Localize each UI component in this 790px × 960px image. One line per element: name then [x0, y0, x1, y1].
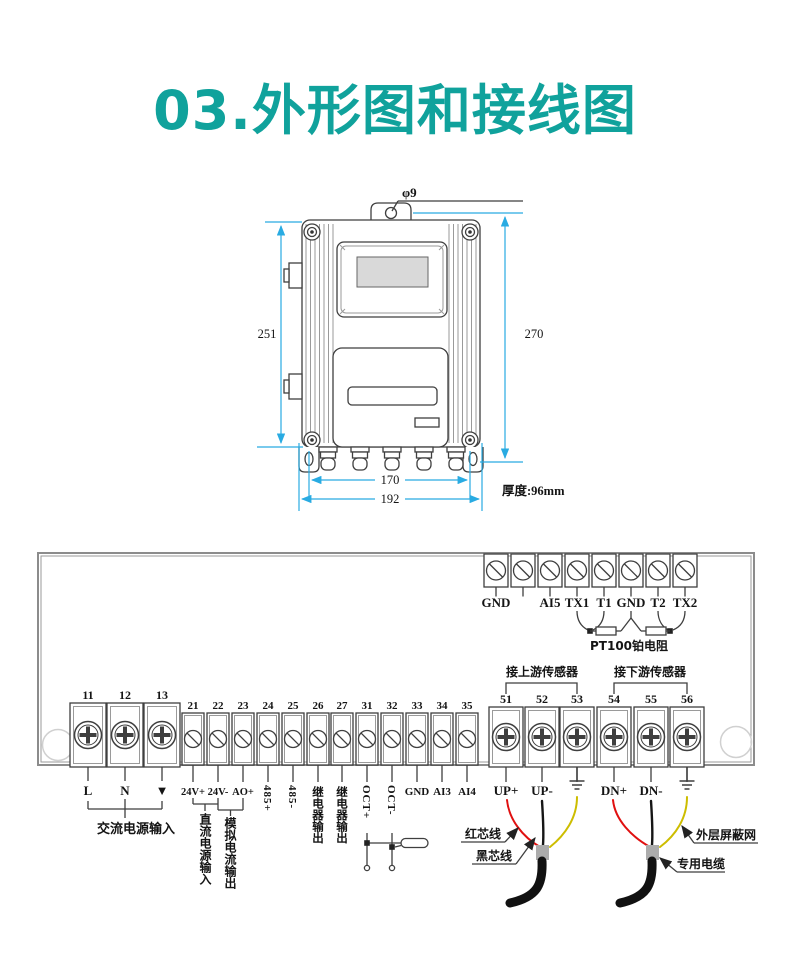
top-label-t1: T1 [596, 595, 611, 610]
thickness-label: 厚度:96mm [502, 483, 565, 498]
page-title: 03.外形图和接线图 [0, 66, 790, 145]
top-label-t2: T2 [650, 595, 665, 610]
svg-text:33: 33 [412, 700, 424, 712]
shield-wire [550, 797, 577, 847]
ac-power-caption: 交流电源输入 [97, 821, 175, 837]
hinge-top [284, 263, 302, 288]
svg-text:27: 27 [337, 700, 349, 712]
top-label-tx1: TX1 [565, 595, 590, 610]
svg-text:13: 13 [156, 688, 168, 702]
pt100-label: PT100铂电阻 [590, 638, 668, 653]
annotation-shield: 外层屏蔽网 [682, 826, 758, 843]
svg-text:53: 53 [571, 692, 583, 706]
label-upm: UP- [531, 783, 553, 798]
left-fins [306, 224, 333, 443]
label-octp: OCT+ [360, 785, 372, 819]
upstream-cable-group [507, 797, 577, 903]
label-24vp: 24V+ [181, 787, 205, 798]
dc-power-caption: 直流电源输入 [197, 813, 214, 885]
svg-text:11: 11 [82, 688, 93, 702]
svg-text:外层屏蔽网: 外层屏蔽网 [696, 827, 756, 842]
bottom-tab-right [463, 447, 483, 472]
label-upp: UP+ [494, 783, 519, 798]
svg-text:31: 31 [362, 700, 373, 712]
earth-ground-icon [570, 767, 585, 789]
svg-text:专用电缆: 专用电缆 [677, 856, 725, 871]
top-label-gnd1: GND [482, 595, 511, 610]
svg-text:21: 21 [188, 700, 199, 712]
label-relay-output-2: 继电器输出 [334, 786, 350, 844]
label-485p: 485+ [261, 785, 273, 812]
shield-wire [660, 797, 687, 847]
dim-251-label: 251 [258, 327, 277, 341]
pt100-resistor-2 [646, 627, 666, 635]
power-terminals [70, 703, 180, 781]
svg-text:52: 52 [536, 692, 548, 706]
sensor-cable [620, 861, 652, 903]
panel-slot [348, 387, 437, 405]
red-core-wire [613, 800, 650, 847]
dim-hole-label: φ9 [402, 185, 417, 200]
annotation-red-core: 红芯线 [461, 826, 518, 842]
sensor-cable [510, 861, 542, 903]
right-fins [449, 224, 476, 443]
annotation-cable: 专用电缆 [660, 856, 725, 872]
black-core-wire [542, 801, 543, 845]
wiring-diagram: GND AI5 TX1 T1 GND T2 TX2 P [0, 545, 790, 960]
svg-text:23: 23 [238, 700, 250, 712]
hole-dia-leader [392, 201, 523, 211]
svg-text:35: 35 [462, 700, 474, 712]
label-dnm: DN- [639, 783, 662, 798]
svg-text:51: 51 [500, 692, 512, 706]
red-core-wire [507, 800, 540, 847]
svg-text:24: 24 [263, 700, 275, 712]
svg-text:26: 26 [313, 700, 325, 712]
svg-text:34: 34 [437, 700, 449, 712]
outline-drawing: φ9 251 270 170 192 厚度:96mm [240, 175, 580, 520]
earth-ground-icon [680, 767, 695, 789]
mounting-hole [386, 208, 397, 219]
dim-270-label: 270 [525, 327, 544, 341]
label-ai3: AI3 [433, 786, 451, 798]
label-relay-output-1: 继电器输出 [310, 786, 326, 844]
ao-output-caption: 模拟电流输出 [222, 817, 239, 889]
page: 03.外形图和接线图 [0, 0, 790, 960]
black-core-wire [651, 801, 652, 845]
top-label-tx2: TX2 [673, 595, 698, 610]
dim-192-label: 192 [381, 492, 400, 506]
display-bezel [337, 242, 447, 317]
label-n: N [120, 783, 130, 798]
label-l: L [84, 783, 93, 798]
ao-bracket [218, 798, 243, 816]
hinge-bottom [284, 374, 302, 399]
svg-text:22: 22 [213, 700, 225, 712]
svg-text:25: 25 [288, 700, 300, 712]
mounting-tab [371, 203, 411, 221]
label-gnd: GND [405, 786, 430, 798]
svg-text:32: 32 [387, 700, 399, 712]
label-dnp: DN+ [601, 783, 627, 798]
svg-text:54: 54 [608, 692, 620, 706]
dc-bracket [193, 798, 218, 811]
top-label-ai5: AI5 [540, 595, 561, 610]
dim-170-label: 170 [381, 473, 400, 487]
svg-text:黑芯线: 黑芯线 [476, 848, 512, 863]
svg-text:12: 12 [119, 688, 131, 702]
label-pe-triangle: ▼ [156, 783, 169, 798]
oct-output-circuit [364, 833, 428, 871]
lcd-screen [357, 257, 428, 287]
label-24vm: 24V- [208, 787, 229, 798]
label-485m: 485- [286, 785, 298, 809]
svg-text:56: 56 [681, 692, 693, 706]
lower-panel [333, 348, 448, 447]
label-octm: OCT- [385, 785, 397, 816]
panel-button [415, 418, 439, 427]
downstream-cable-group [613, 797, 687, 903]
cable-glands [319, 447, 465, 470]
downstream-caption: 接下游传感器 [614, 664, 687, 679]
svg-text:红芯线: 红芯线 [465, 826, 501, 841]
svg-text:55: 55 [645, 692, 657, 706]
sensor-terminals [489, 707, 704, 782]
upstream-caption: 接上游传感器 [506, 664, 579, 679]
label-ai4: AI4 [458, 786, 476, 798]
ac-power-bracket [88, 799, 162, 818]
pt100-resistor-1 [596, 627, 616, 635]
label-aop: AO+ [232, 787, 254, 798]
top-label-gnd2: GND [617, 595, 646, 610]
